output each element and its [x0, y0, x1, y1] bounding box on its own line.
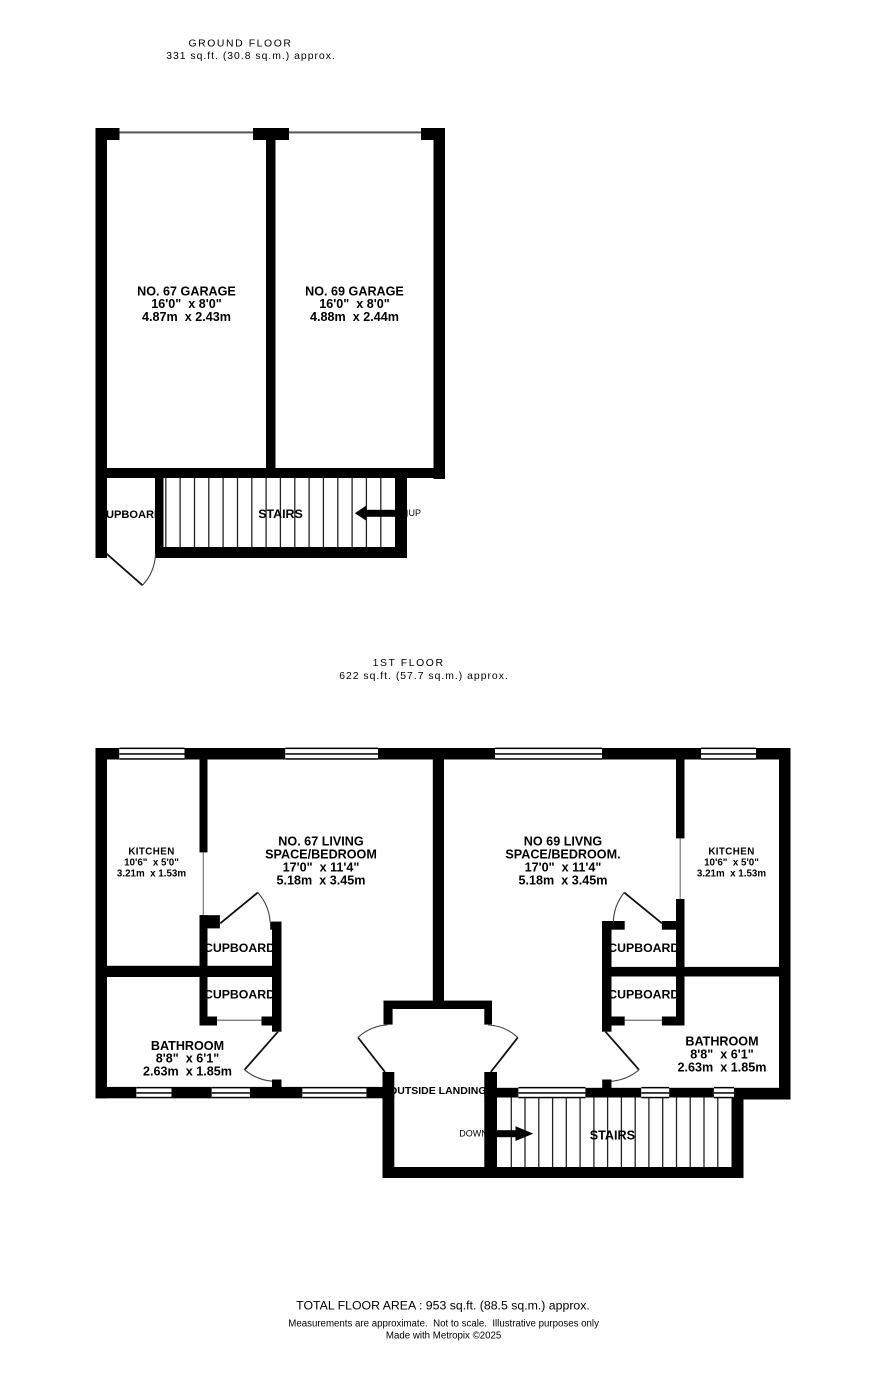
svg-text:Made with Metropix ©2025: Made with Metropix ©2025 [386, 1331, 501, 1342]
svg-text:2.63m x 1.85m: 2.63m x 1.85m [143, 1064, 232, 1078]
svg-text:331 sq.ft. (30.8 sq.m.) approx: 331 sq.ft. (30.8 sq.m.) approx. [166, 51, 336, 62]
svg-text:BATHROOM: BATHROOM [685, 1035, 758, 1049]
svg-text:STAIRS: STAIRS [258, 507, 303, 521]
svg-text:SPACE/BEDROOM: SPACE/BEDROOM [265, 847, 377, 861]
svg-text:4.87m x 2.43m: 4.87m x 2.43m [142, 310, 231, 324]
svg-text:2.63m x 1.85m: 2.63m x 1.85m [678, 1061, 767, 1075]
svg-text:17'0" x 11'4": 17'0" x 11'4" [283, 860, 360, 874]
svg-text:3.21m x 1.53m: 3.21m x 1.53m [117, 868, 186, 879]
svg-text:5.18m x 3.45m: 5.18m x 3.45m [277, 873, 366, 887]
svg-text:4.88m x 2.44m: 4.88m x 2.44m [310, 310, 399, 324]
svg-text:GROUND FLOOR: GROUND FLOOR [188, 39, 292, 50]
svg-text:KITCHEN: KITCHEN [128, 847, 174, 858]
svg-text:1ST FLOOR: 1ST FLOOR [373, 658, 445, 669]
svg-text:10'6" x 5'0": 10'6" x 5'0" [704, 858, 759, 869]
svg-text:KITCHEN: KITCHEN [708, 847, 754, 858]
svg-text:5.18m x 3.45m: 5.18m x 3.45m [519, 873, 608, 887]
svg-text:CUPBOARD: CUPBOARD [98, 509, 162, 521]
svg-text:CUPBOARD: CUPBOARD [608, 941, 679, 955]
svg-text:8'8" x 6'1": 8'8" x 6'1" [690, 1048, 753, 1062]
svg-text:NO 69 LIVNG: NO 69 LIVNG [524, 834, 603, 848]
svg-text:Measurements are approximate.: Measurements are approximate. Not to sca… [288, 1318, 599, 1329]
svg-text:STAIRS: STAIRS [590, 1129, 635, 1143]
svg-text:17'0" x 11'4": 17'0" x 11'4" [525, 860, 602, 874]
svg-text:NO. 67 LIVING: NO. 67 LIVING [278, 834, 364, 848]
svg-text:CUPBOARD: CUPBOARD [204, 941, 275, 955]
svg-text:3.21m x 1.53m: 3.21m x 1.53m [697, 868, 766, 879]
svg-text:CUPBOARD: CUPBOARD [204, 988, 275, 1002]
svg-text:CUPBOARD: CUPBOARD [608, 988, 679, 1002]
svg-text:DOWN: DOWN [459, 1129, 488, 1139]
svg-text:UP: UP [409, 508, 422, 518]
svg-text:TOTAL FLOOR AREA : 953 sq.ft.: TOTAL FLOOR AREA : 953 sq.ft. (88.5 sq.m… [296, 1299, 590, 1313]
svg-text:SPACE/BEDROOM.: SPACE/BEDROOM. [505, 847, 620, 861]
svg-text:10'6" x 5'0": 10'6" x 5'0" [124, 858, 179, 869]
svg-text:622 sq.ft. (57.7 sq.m.) approx: 622 sq.ft. (57.7 sq.m.) approx. [339, 671, 509, 682]
svg-text:OUTSIDE LANDING: OUTSIDE LANDING [389, 1085, 486, 1097]
